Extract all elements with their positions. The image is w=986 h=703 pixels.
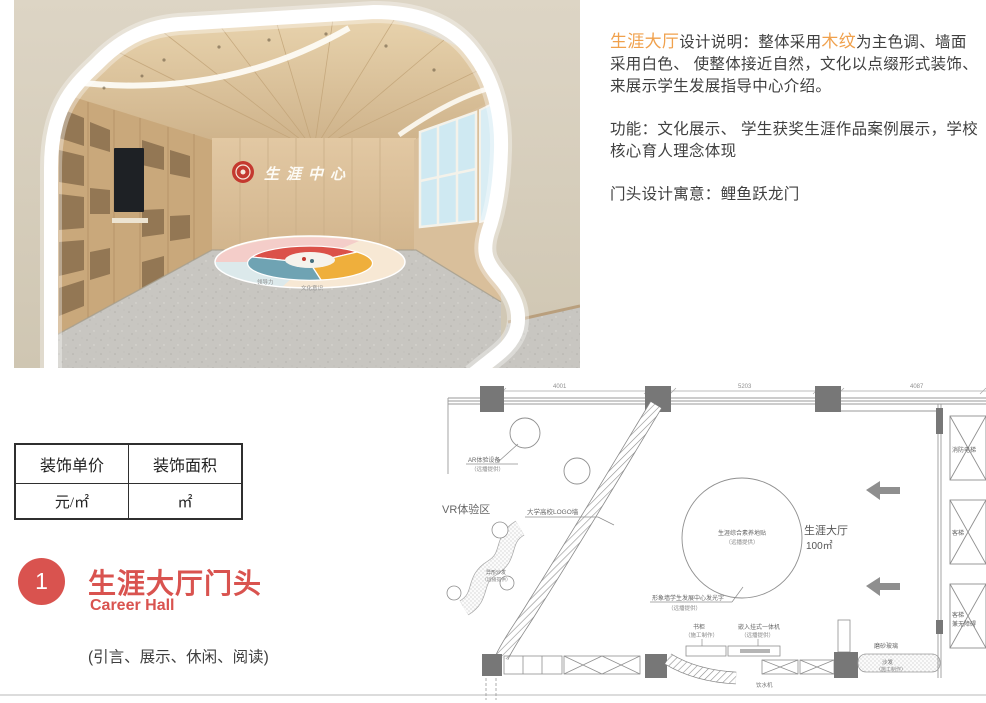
pricing-table: 装饰单价 装饰面积 元/㎡ ㎡ bbox=[14, 443, 243, 520]
section-note: (引言、展示、休闲、阅读) bbox=[88, 645, 269, 667]
dimension-value: 4001 bbox=[553, 384, 567, 390]
section-subtitle: Career Hall bbox=[90, 597, 175, 615]
column bbox=[480, 386, 504, 412]
slide-page: 生涯中心 bbox=[0, 0, 986, 703]
hall-area-value: 100㎡ bbox=[806, 540, 833, 552]
dimension-value: 5203 bbox=[738, 384, 752, 390]
feature-wall-leader bbox=[732, 587, 743, 602]
stool-circle bbox=[564, 458, 590, 484]
logo-wall-leader bbox=[598, 517, 614, 525]
tv-screen bbox=[114, 148, 144, 212]
pricing-table-header-row: 装饰单价 装饰面积 bbox=[15, 444, 242, 484]
desc-paragraph-1: 生涯大厅设计说明：整体采用木纹为主色调、墙面采用白色、 使整体接近自然，文化以点… bbox=[610, 30, 982, 98]
top-wall bbox=[448, 398, 986, 474]
floor-plan: 4001 5203 4087 AR体验设备 （远播提供） VR体验区 大学高校L… bbox=[440, 378, 986, 703]
wall-mounted-kiosk bbox=[740, 649, 770, 653]
floor-sticker-note: （远播提供） bbox=[725, 538, 758, 546]
sofa-note: （施工制作） bbox=[876, 666, 906, 673]
tv-console-ledge bbox=[112, 218, 148, 223]
floor-graphic-label: 文化意识 bbox=[301, 284, 324, 292]
sofa-label: 沙发 bbox=[882, 658, 894, 666]
ar-device-note: （远播提供） bbox=[471, 465, 504, 473]
section-title: 生涯大厅门头 bbox=[88, 562, 262, 602]
desc-paragraph-2: 功能：文化展示、 学生获奖生涯作品案例展示，学校核心育人理念体现 bbox=[610, 119, 982, 163]
elevator-accessible-label-2: 兼无障碍 bbox=[952, 620, 976, 628]
column bbox=[645, 654, 667, 678]
machine-label: 嵌入挂式一体机 bbox=[738, 623, 780, 631]
shaped-sofa bbox=[464, 528, 520, 608]
entry-arrow-icon bbox=[866, 481, 900, 500]
vr-zone-label: VR体验区 bbox=[442, 502, 490, 516]
interior-render-photo: 生涯中心 bbox=[14, 0, 580, 368]
ar-device-label: AR体验设备 bbox=[468, 456, 500, 464]
logo-wall-hatch bbox=[502, 405, 656, 657]
ar-device-circle bbox=[510, 418, 540, 448]
curved-wall-hatch bbox=[668, 659, 736, 678]
door-jamb bbox=[936, 620, 943, 634]
design-description: 生涯大厅设计说明：整体采用木纹为主色调、墙面采用白色、 使整体接近自然，文化以点… bbox=[610, 30, 982, 227]
feature-wall-note: （远播提供） bbox=[668, 604, 701, 612]
machine-note: （远播提供） bbox=[741, 631, 774, 639]
column bbox=[834, 652, 858, 678]
desc-paragraph-3: 门头设计寓意：鲤鱼跃龙门 bbox=[610, 184, 982, 206]
column bbox=[482, 654, 502, 676]
interior-view: 生涯中心 bbox=[51, 12, 501, 368]
stool-circle bbox=[492, 522, 508, 538]
school-seal-core bbox=[241, 170, 246, 175]
hall-area-label: 生涯大厅 bbox=[804, 523, 848, 537]
back-wall bbox=[212, 138, 416, 250]
shaped-sofa-label: 异形沙发 bbox=[486, 569, 506, 576]
column bbox=[815, 386, 841, 412]
logo-wall-label: 大学高校LOGO墙 bbox=[527, 507, 579, 516]
floor-sticker-circle bbox=[682, 478, 802, 598]
feature-wall-label: 形象墙学生发展中心发光字 bbox=[652, 594, 724, 602]
floor-graphic-label: 领导力 bbox=[257, 278, 274, 286]
entry-arrow-icon bbox=[866, 577, 900, 596]
x-cabinets bbox=[762, 660, 834, 674]
stool-circle bbox=[447, 586, 461, 600]
shaped-sofa-note: （远播提供） bbox=[482, 576, 511, 583]
signage-text: 生涯中心 bbox=[264, 166, 352, 183]
pricing-table-value-row: 元/㎡ ㎡ bbox=[15, 484, 242, 520]
pricing-table-unit-price-value: 元/㎡ bbox=[15, 484, 129, 520]
bookcase-label: 书柜 bbox=[693, 623, 705, 631]
pricing-table-header-area: 装饰面积 bbox=[129, 444, 243, 484]
wall-pier bbox=[838, 620, 850, 652]
elevator-fire-label: 消防电梯 bbox=[952, 446, 976, 454]
desc-highlight-wood: 木纹 bbox=[821, 32, 856, 51]
pricing-table-area-value: ㎡ bbox=[129, 484, 243, 520]
ar-leader-line bbox=[498, 444, 518, 462]
right-wall bbox=[938, 404, 941, 678]
section-number-badge: 1 bbox=[18, 558, 65, 605]
elevator-accessible-label: 客梯 bbox=[952, 611, 964, 619]
water-machine-label: 饮水机 bbox=[756, 681, 773, 689]
door-jamb bbox=[936, 408, 943, 434]
shelving-run bbox=[504, 656, 640, 674]
elevator-passenger-label: 客梯 bbox=[952, 529, 964, 537]
frosted-glass-label: 磨砂玻璃 bbox=[874, 642, 898, 650]
dimension-value: 4087 bbox=[910, 384, 924, 390]
floor-sticker-label: 生涯综合素养地贴 bbox=[718, 529, 766, 537]
pricing-table-header-unit-price: 装饰单价 bbox=[15, 444, 129, 484]
desc-highlight-hall: 生涯大厅 bbox=[610, 32, 679, 51]
bookcase-note: （施工制作） bbox=[685, 631, 718, 639]
